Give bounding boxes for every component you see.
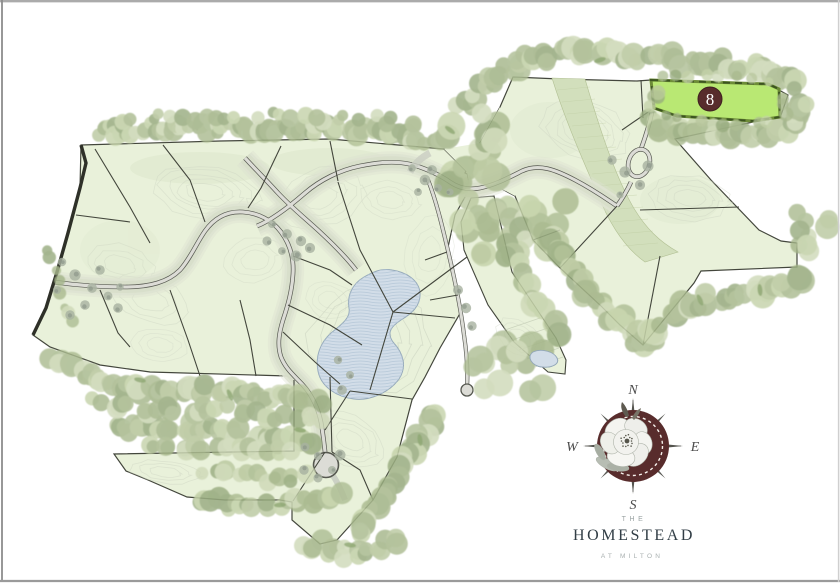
- svg-text:N: N: [627, 383, 638, 398]
- svg-text:HOMESTEAD: HOMESTEAD: [573, 527, 695, 544]
- svg-text:S: S: [630, 498, 637, 513]
- svg-text:AT MILTON: AT MILTON: [601, 553, 663, 560]
- svg-text:8: 8: [706, 90, 715, 109]
- svg-text:THE: THE: [622, 516, 647, 523]
- svg-text:W: W: [566, 440, 579, 455]
- svg-text:E: E: [690, 440, 700, 455]
